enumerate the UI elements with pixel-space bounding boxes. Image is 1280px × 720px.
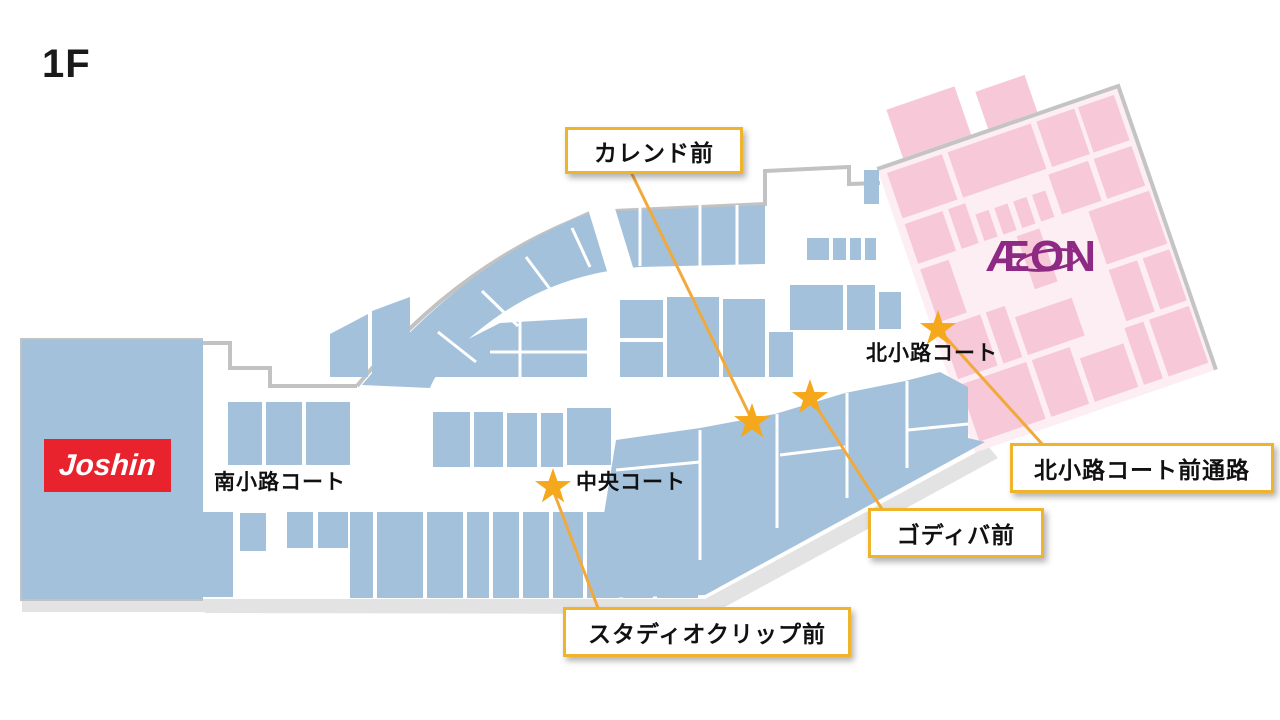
callout-calend-mae[interactable]: カレンド前 bbox=[565, 127, 743, 174]
label-minamikoji-court: 南小路コート bbox=[214, 466, 346, 496]
callout-studio-clip-mae[interactable]: スタディオクリップ前 bbox=[563, 607, 851, 657]
floor-title: 1F bbox=[42, 42, 91, 87]
label-kitakoji-court: 北小路コート bbox=[866, 337, 998, 367]
callout-godiva-mae-label: ゴディバ前 bbox=[897, 516, 1015, 550]
label-chuo-court: 中央コート bbox=[576, 466, 686, 496]
callout-calend-mae-label: カレンド前 bbox=[594, 134, 714, 168]
joshin-logo-text: Joshin bbox=[58, 449, 157, 483]
star-chuo-court[interactable] bbox=[535, 468, 571, 502]
joshin-logo[interactable]: Joshin bbox=[44, 439, 171, 492]
callout-studio-clip-mae-label: スタディオクリップ前 bbox=[588, 615, 826, 649]
callout-godiva-mae[interactable]: ゴディバ前 bbox=[868, 508, 1044, 558]
callout-kitakoji-court-passage[interactable]: 北小路コート前通路 bbox=[1010, 443, 1274, 493]
floor-map-1f: 1F Joshin ÆON 南小路コート 中央コート 北小路コート カレンド前 … bbox=[0, 0, 1280, 720]
callout-kitakoji-court-passage-label: 北小路コート前通路 bbox=[1034, 451, 1250, 485]
